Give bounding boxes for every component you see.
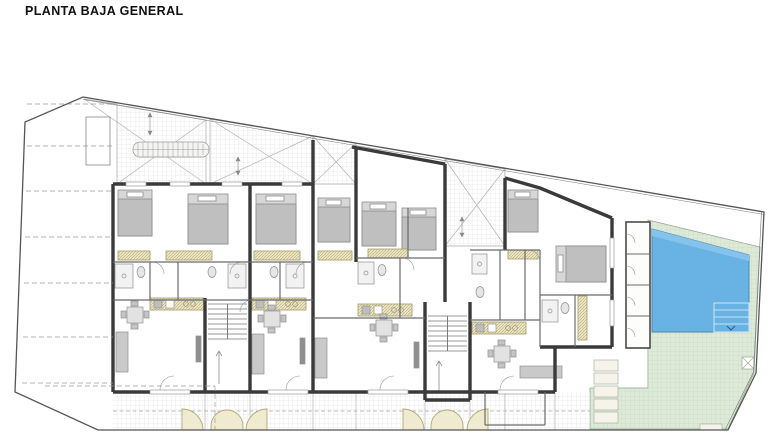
- patio-d: [445, 159, 505, 246]
- floor-plan-drawing: [0, 0, 770, 433]
- porch-band: [113, 392, 590, 430]
- pool-garden-zone: [590, 220, 760, 430]
- trasteros-block: [626, 222, 650, 348]
- patio-b2: [313, 136, 356, 184]
- stair-cores: [208, 304, 467, 392]
- furniture-layer: [115, 190, 606, 392]
- hedge-icon: [133, 142, 209, 157]
- bathrooms: [115, 254, 569, 322]
- pool-stairs-icon: [714, 303, 749, 332]
- telecom-box: [86, 117, 110, 165]
- patio-b1: [210, 119, 313, 184]
- floor-plan-page: PLANTA BAJA GENERAL: [0, 0, 770, 433]
